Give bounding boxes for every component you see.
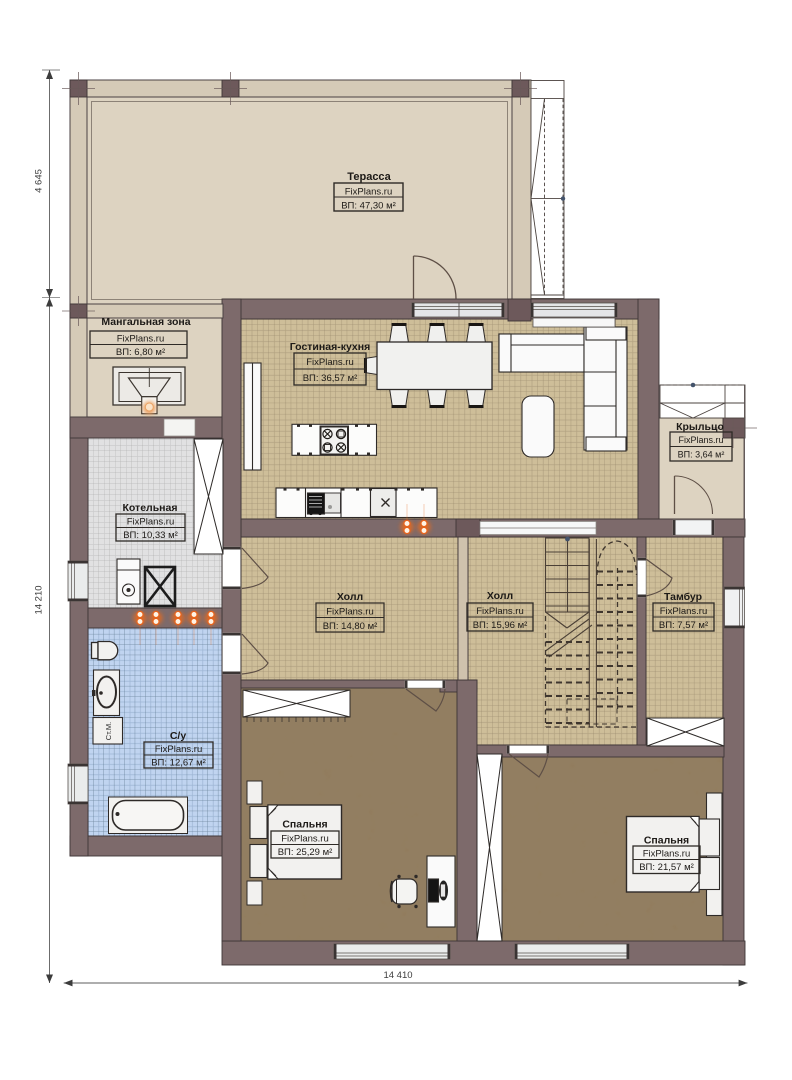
svg-text:FixPlans.ru: FixPlans.ru (127, 517, 175, 528)
svg-text:FixPlans.ru: FixPlans.ru (345, 187, 393, 198)
svg-text:Тамбур: Тамбур (664, 591, 702, 603)
svg-text:Ст.М.: Ст.М. (104, 722, 113, 740)
svg-text:Терасса: Терасса (347, 171, 391, 183)
svg-text:Котельная: Котельная (123, 502, 178, 514)
svg-text:FixPlans.ru: FixPlans.ru (155, 744, 203, 755)
svg-text:Холл: Холл (487, 590, 513, 602)
svg-text:ВП: 3,64 м²: ВП: 3,64 м² (678, 450, 725, 460)
svg-text:FixPlans.ru: FixPlans.ru (306, 357, 354, 368)
svg-text:ВП: 25,29 м²: ВП: 25,29 м² (278, 847, 333, 858)
svg-text:ВП: 7,57 м²: ВП: 7,57 м² (659, 620, 708, 631)
svg-text:ВП: 14,80 м²: ВП: 14,80 м² (323, 621, 378, 632)
svg-text:4 645: 4 645 (34, 169, 45, 193)
svg-text:ВП: 15,96 м²: ВП: 15,96 м² (473, 620, 528, 631)
svg-text:FixPlans.ru: FixPlans.ru (678, 435, 723, 445)
svg-text:14 210: 14 210 (34, 585, 45, 614)
svg-text:FixPlans.ru: FixPlans.ru (326, 607, 374, 618)
svg-text:Крыльцо: Крыльцо (676, 421, 724, 433)
svg-text:FixPlans.ru: FixPlans.ru (281, 834, 329, 845)
svg-text:С/у: С/у (170, 730, 187, 742)
svg-text:14 410: 14 410 (383, 970, 412, 981)
svg-text:Мангальная зона: Мангальная зона (101, 316, 190, 328)
svg-text:ВП: 12,67 м²: ВП: 12,67 м² (151, 758, 206, 769)
svg-text:FixPlans.ru: FixPlans.ru (476, 606, 524, 617)
svg-text:FixPlans.ru: FixPlans.ru (643, 849, 691, 860)
svg-text:ВП: 47,30 м²: ВП: 47,30 м² (341, 201, 396, 212)
svg-text:ВП: 36,57 м²: ВП: 36,57 м² (303, 373, 358, 384)
svg-text:ВП: 10,33 м²: ВП: 10,33 м² (123, 530, 178, 541)
svg-text:FixPlans.ru: FixPlans.ru (660, 606, 708, 617)
svg-text:Гостиная-кухня: Гостиная-кухня (290, 341, 370, 353)
svg-text:Спальня: Спальня (644, 835, 689, 847)
svg-text:Спальня: Спальня (282, 819, 327, 831)
svg-text:FixPlans.ru: FixPlans.ru (117, 334, 165, 345)
svg-text:ВП: 21,57 м²: ВП: 21,57 м² (639, 862, 694, 873)
svg-text:Холл: Холл (337, 591, 363, 603)
svg-text:ВП: 6,80 м²: ВП: 6,80 м² (116, 347, 165, 358)
